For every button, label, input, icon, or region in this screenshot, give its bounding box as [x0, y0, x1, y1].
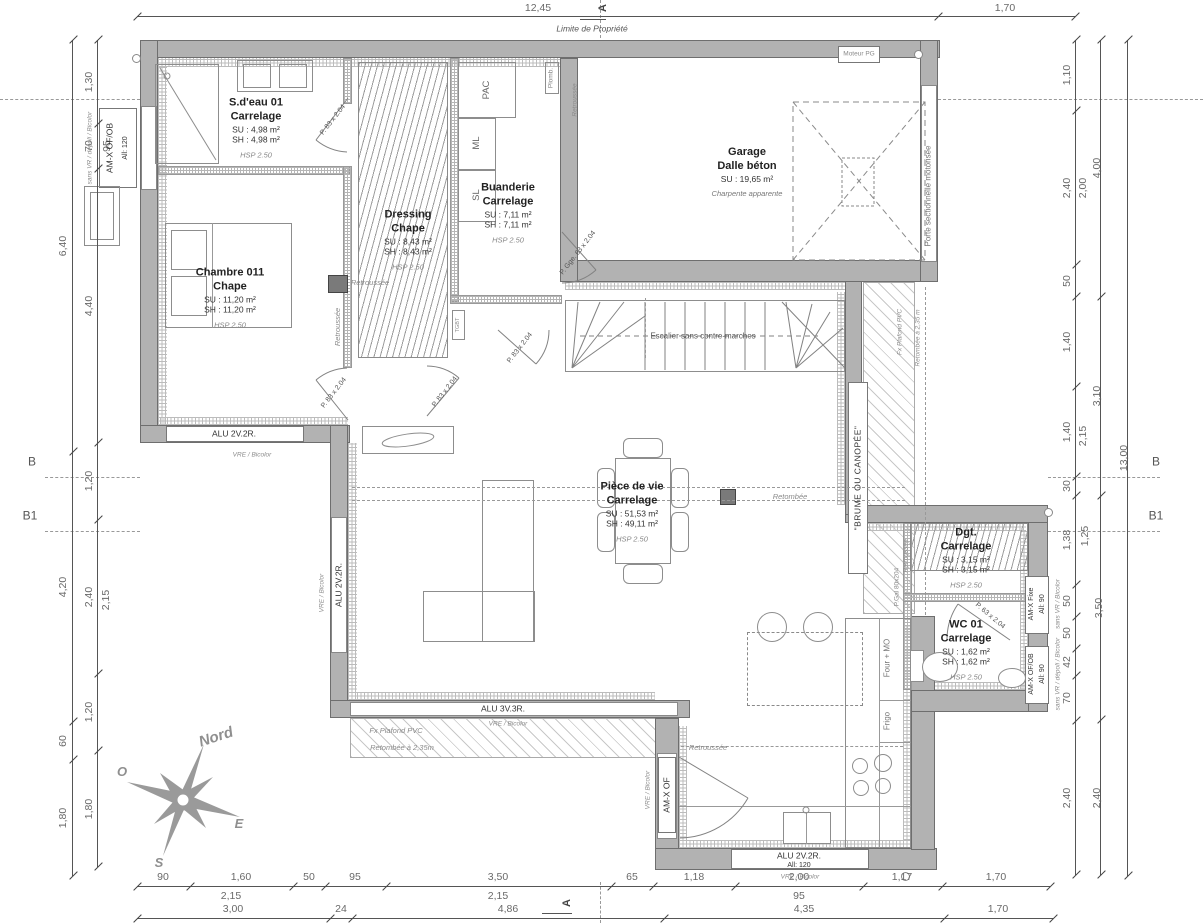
dim-tick: [289, 882, 297, 890]
dim-label: 4,40: [84, 296, 96, 316]
dim-label: 1,70: [995, 3, 1015, 15]
dim-chain-left-outer: [72, 40, 73, 876]
window-note: VRE / Bicolor: [233, 451, 272, 458]
dim-tick: [1097, 35, 1105, 43]
dim-label: 2,40: [1062, 178, 1074, 198]
dim-label: 2,15: [488, 891, 508, 903]
kitchen-sink: [783, 812, 831, 844]
bar-stool: [757, 612, 787, 642]
dim-tick: [1072, 260, 1080, 268]
dim-tick: [69, 755, 77, 763]
dim-label: 12,45: [525, 3, 551, 15]
post-hall: [328, 275, 348, 293]
dim-label: 2,40: [84, 587, 96, 607]
dim-tick: [348, 914, 356, 922]
dim-label: 2,00: [1078, 178, 1090, 198]
door-size-label: P. 83 x 2.04: [431, 375, 459, 408]
dim-label: 4,35: [794, 904, 814, 916]
sectional-door-label: Porte sectionnelle motorisée: [925, 146, 934, 247]
annotation: Retroussée: [351, 279, 389, 287]
sink-basin: [279, 64, 307, 88]
dim-chain-right-inner: [1075, 40, 1076, 875]
annotation: Retroussée: [902, 539, 909, 572]
room-hsp: HSP 2.50: [492, 235, 524, 244]
pac-label: PAC: [482, 81, 492, 100]
property-line-label: Limite de Propriété: [556, 24, 627, 33]
room-name: Garage: [728, 146, 766, 160]
window-allege: All: 90: [1039, 594, 1047, 613]
dim-label: 95: [349, 872, 361, 884]
dim-tick: [938, 882, 946, 890]
terrace-label: "BRUME OU CANOPÉE": [853, 426, 862, 531]
wall-garage-south: [560, 260, 938, 282]
stair-label: Escalier sans contre-marches: [650, 333, 755, 342]
window-label: AM-X Fixe: [1028, 588, 1036, 621]
window-label: ALU 2V.2R.: [212, 429, 256, 438]
counter-line: [879, 742, 911, 743]
dim-label: 90: [157, 872, 169, 884]
garage-ceiling-trap: [793, 102, 925, 260]
room-sh: SH : 4,98 m²: [232, 135, 280, 146]
dim-label: 3,10: [1092, 386, 1104, 406]
dim-tick: [1072, 382, 1080, 390]
dim-tick: [1072, 580, 1080, 588]
room-su: SU : 1,62 m²: [942, 646, 990, 657]
room-sh: SH : 1,62 m²: [942, 657, 990, 668]
room-label-garage: Garage Dalle béton SU : 19,65 m² Charpen…: [712, 146, 783, 199]
dim-label: 24: [335, 904, 347, 916]
section-marker-b1-right: B1: [1149, 509, 1164, 522]
room-name: Buanderie: [481, 181, 535, 195]
room-sh: SH : 49,11 m²: [606, 519, 658, 530]
plumbing-label: Plomb.: [547, 68, 554, 88]
room-su: SU : 4,98 m²: [232, 124, 280, 135]
dim-label: 1,20: [84, 702, 96, 722]
annotation: Retroussée: [571, 83, 578, 116]
section-marker-line: [580, 19, 606, 20]
annotation: Retombée à 2,35m: [370, 744, 434, 752]
chair: [671, 468, 689, 508]
dim-label: 4,00: [1092, 158, 1104, 178]
room-name: S.d'eau 01: [229, 96, 283, 110]
wall-top: [140, 40, 940, 58]
dim-tick: [1097, 870, 1105, 878]
meter-box-inner: [90, 192, 114, 240]
dim-tick: [1072, 491, 1080, 499]
room-sh: SH : 8,43 m²: [384, 247, 432, 258]
sofa-short: [423, 591, 535, 642]
dim-tick: [1072, 671, 1080, 679]
dim-chain-top: [137, 16, 1075, 17]
dim-tick: [326, 914, 334, 922]
window-note: VRE / Bicolor: [489, 720, 528, 727]
room-label-dgt: Dgt. Carrelage SU : 3,15 m² SH : 3,15 m²…: [941, 526, 992, 589]
dim-label: 60: [58, 735, 70, 747]
room-su: SU : 19,65 m²: [721, 173, 773, 184]
window-label: ALU 2V.2R.: [334, 563, 343, 607]
compass-rose-icon: [127, 744, 240, 856]
insulation-kitchen-west: [679, 726, 687, 848]
window-allege: All: 120: [122, 136, 130, 159]
cooktop-burner: [853, 780, 869, 796]
dim-tick: [321, 882, 329, 890]
room-floor: Carrelage: [607, 494, 658, 508]
dim-tick: [660, 914, 668, 922]
section-marker-line: [542, 913, 572, 914]
room-su: SU : 11,20 m²: [204, 294, 256, 305]
partition-dgt-wc: [903, 593, 1028, 602]
partition-bedroom-dressing: [343, 166, 352, 368]
dim-label: 2,40: [1092, 788, 1104, 808]
room-floor: Carrelage: [231, 110, 282, 124]
room-label-dressing: Dressing Chape SU : 8,43 m² SH : 8,43 m²…: [384, 208, 432, 271]
dim-tick: [649, 882, 657, 890]
survey-point: [914, 50, 923, 59]
dim-tick: [1049, 914, 1057, 922]
chair: [623, 564, 663, 584]
survey-point: [1044, 508, 1053, 517]
shower-tray: [155, 64, 219, 164]
dim-tick: [1097, 292, 1105, 300]
dim-label: 1,70: [988, 904, 1008, 916]
door-size-label: P. 83 x 2.04: [506, 331, 534, 364]
dim-tick: [133, 12, 141, 20]
section-marker-b1-left: B1: [23, 509, 38, 522]
counter-line: [879, 700, 911, 701]
sideboard: [362, 426, 454, 454]
dim-tick: [1072, 612, 1080, 620]
window-note: VRE / Bicolor: [781, 873, 820, 880]
insulation-living-west: [348, 443, 357, 700]
dim-chain-bottom-2: [137, 918, 1053, 919]
dim-tick: [382, 882, 390, 890]
dim-tick: [1124, 871, 1132, 879]
dim-tick: [94, 669, 102, 677]
chair: [623, 438, 663, 458]
cooktop-burner: [874, 754, 892, 772]
dim-label: 2,40: [1062, 788, 1074, 808]
floor-plan: 12,45 1,70 Limite de Propriété 90 1,60 5…: [0, 0, 1203, 923]
dim-label: 50: [1062, 275, 1074, 287]
room-floor: Dalle béton: [717, 160, 776, 174]
dim-tick: [94, 35, 102, 43]
room-note: Charpente apparente: [712, 189, 783, 198]
dim-label: 2,15: [1078, 426, 1090, 446]
partition-buanderie-south: [450, 295, 562, 304]
room-hsp: HSP 2.50: [950, 672, 982, 681]
dim-tick: [69, 447, 77, 455]
room-su: SU : 7,11 m²: [484, 209, 531, 220]
section-b-axis-right: [1048, 477, 1160, 478]
annotation: Retombée à 2,35 m: [914, 309, 921, 366]
dim-label: 1,40: [1062, 422, 1074, 442]
window-allege: All: 120: [787, 862, 810, 870]
annotation: Fx Plafond PVC: [896, 309, 903, 355]
room-su: SU : 3,15 m²: [942, 554, 990, 565]
dim-label: 2,15: [221, 891, 241, 903]
room-su: SU : 51,53 m²: [606, 508, 658, 519]
dim-label: 70: [1062, 692, 1074, 704]
room-hsp: HSP 2.50: [214, 320, 246, 329]
annotation: Retombée: [773, 493, 808, 501]
oven-label: Four + MO: [884, 639, 893, 677]
partition-bath-dressing: [343, 58, 352, 104]
room-sh: SH : 7,11 m²: [484, 220, 531, 231]
section-marker-b-left: B: [28, 455, 36, 468]
section-marker-a-bottom: A: [561, 899, 573, 907]
dim-tick: [1097, 491, 1105, 499]
room-label-buanderie: Buanderie Carrelage SU : 7,11 m² SH : 7,…: [481, 181, 535, 244]
dim-tick: [1072, 716, 1080, 724]
dim-tick: [859, 882, 867, 890]
room-label-wc: WC 01 Carrelage SU : 1,62 m² SH : 1,62 m…: [941, 618, 992, 681]
cooktop-burner: [875, 778, 891, 794]
sink-basin: [243, 64, 271, 88]
sink-divider: [806, 812, 807, 844]
kitchen-counter: [845, 618, 911, 848]
counter-line: [879, 618, 880, 848]
door-size-label: P. 83 x 2.04: [319, 103, 347, 136]
room-label-sdeau: S.d'eau 01 Carrelage SU : 4,98 m² SH : 4…: [229, 96, 283, 159]
dim-tick: [69, 717, 77, 725]
garage-motor-label: Moteur PG: [843, 50, 874, 57]
window-note: sans VR / dépoli / Bicolor: [1054, 638, 1061, 711]
annotation: Retroussée: [689, 744, 727, 752]
dim-tick: [94, 746, 102, 754]
dim-tick: [1071, 12, 1079, 20]
room-floor: Carrelage: [483, 195, 534, 209]
cooktop-burner: [852, 758, 868, 774]
room-name: Chambre 011: [196, 266, 264, 280]
dim-tick: [133, 914, 141, 922]
dim-tick: [1072, 35, 1080, 43]
counter-edge: [679, 806, 911, 807]
compass-north-label: Nord: [197, 724, 236, 751]
dim-label: 4,86: [498, 904, 518, 916]
room-label-piecedevie: Pièce de vie Carrelage SU : 51,53 m² SH …: [601, 480, 664, 543]
property-line-west: [0, 99, 140, 100]
dim-label: 3,50: [1094, 598, 1106, 618]
dim-label: 2,15: [101, 590, 113, 610]
fridge-label: Frigo: [884, 712, 893, 730]
room-floor: Chape: [391, 222, 425, 236]
dim-tick: [1072, 106, 1080, 114]
chair: [671, 512, 689, 552]
dim-label: 50: [1062, 627, 1074, 639]
room-su: SU : 8,43 m²: [384, 236, 432, 247]
bar-stool: [803, 612, 833, 642]
dim-label: 1,10: [1062, 65, 1074, 85]
room-sh: SH : 3,15 m²: [942, 565, 990, 576]
dim-tick: [69, 871, 77, 879]
dim-label: 1,20: [84, 471, 96, 491]
wall-dgt-north: [845, 505, 1048, 523]
dim-tick: [1072, 644, 1080, 652]
dim-tick: [69, 35, 77, 43]
dim-label: 4,20: [58, 577, 70, 597]
dim-tick: [940, 914, 948, 922]
washer-label: ML: [472, 136, 482, 149]
dim-tick: [186, 882, 194, 890]
annotation: Fx Plafond PVC: [369, 727, 422, 735]
room-name: Dgt.: [955, 526, 976, 540]
window-label: ALU 2V.2R.: [777, 851, 821, 860]
dim-tick: [133, 882, 141, 890]
compass-south-label: S: [155, 856, 164, 870]
dim-label: 1,38: [1062, 530, 1074, 550]
door-size-label: P. 83 x 2.04: [320, 376, 348, 409]
door-note: VRE / Bicolor: [644, 771, 651, 810]
room-sh: SH : 11,20 m²: [204, 305, 256, 316]
dim-chain-left-inner: [97, 40, 98, 867]
room-name: Pièce de vie: [601, 480, 664, 494]
dim-tick: [94, 862, 102, 870]
room-floor: Chape: [213, 280, 247, 294]
compass-west-label: O: [117, 765, 127, 779]
window-allege: All: 90: [1039, 664, 1047, 683]
dim-label: 3,00: [223, 904, 243, 916]
property-line-east: [938, 99, 1203, 100]
door-label: AM-X OF: [662, 777, 671, 812]
room-hsp: HSP 2.50: [392, 262, 424, 271]
insulation-living-south: [357, 692, 655, 700]
dim-label: 50: [303, 872, 315, 884]
section-b1-axis-left: [45, 531, 140, 532]
room-hsp: HSP 2.50: [616, 534, 648, 543]
retombee-line-east: [925, 287, 926, 615]
dim-tick: [1072, 870, 1080, 878]
dim-label: 50: [1062, 595, 1074, 607]
dim-tick: [731, 882, 739, 890]
dim-tick: [607, 882, 615, 890]
window-note: sans VR / Bicolor: [1054, 579, 1061, 629]
dim-label: 1,80: [84, 799, 96, 819]
dim-label: 1,80: [58, 808, 70, 828]
dim-label: 42: [1062, 656, 1074, 668]
dim-tick: [94, 438, 102, 446]
retroussee-line-hall: [645, 298, 646, 358]
room-floor: Carrelage: [941, 632, 992, 646]
insulation-bed-front: [160, 417, 348, 425]
annotation: Retroussée: [334, 308, 342, 346]
dim-label: 3,50: [488, 872, 508, 884]
room-floor: Carrelage: [941, 540, 992, 554]
dim-tick: [1097, 715, 1105, 723]
dim-tick: [1072, 292, 1080, 300]
dim-label: 30: [1062, 480, 1074, 492]
dim-chain-bottom-1: [137, 886, 1050, 887]
window-note: sans VR / dépoli / Bicolor: [86, 112, 93, 185]
dim-label: 1,60: [231, 872, 251, 884]
room-hsp: HSP 2.50: [950, 580, 982, 589]
post-living: [720, 489, 736, 505]
dim-label: 13,00: [1119, 445, 1131, 471]
window-note: VRE / Bicolor: [318, 574, 325, 613]
window-label: AM-X OF/OB: [105, 123, 114, 173]
compass-east-label: E: [235, 817, 244, 831]
partition-bath-bedroom: [158, 166, 350, 175]
room-name: WC 01: [949, 618, 983, 632]
dim-label: 1,18: [684, 872, 704, 884]
section-a-axis-bottom: [600, 882, 601, 923]
dim-tick: [1046, 882, 1054, 890]
pillow: [171, 230, 207, 270]
section-marker-b-right: B: [1152, 455, 1160, 468]
dim-label: 1,30: [84, 72, 96, 92]
room-hsp: HSP 2.50: [240, 150, 272, 159]
dim-label: 65: [626, 872, 638, 884]
hand-basin: [998, 668, 1026, 688]
tgbt-label: TGBT: [455, 318, 461, 333]
insulation-stair-north: [565, 282, 845, 290]
window-label: ALU 3V.3R.: [481, 704, 525, 713]
survey-point: [132, 54, 141, 63]
dim-tick: [94, 515, 102, 523]
window-label: AM-X OF/OB: [1028, 653, 1036, 694]
dim-label: 1,40: [1062, 332, 1074, 352]
dim-tick: [934, 12, 942, 20]
room-label-chambre: Chambre 011 Chape SU : 11,20 m² SH : 11,…: [196, 266, 264, 329]
dim-label: 95: [793, 891, 805, 903]
dim-tick: [1124, 35, 1132, 43]
dim-label: 1,70: [986, 872, 1006, 884]
dim-label: 6,40: [58, 236, 70, 256]
pocket-door-label: P.Gal 80x204: [893, 568, 900, 607]
section-marker-a-top: A: [597, 4, 609, 12]
dim-label: 1,25: [1080, 526, 1092, 546]
dim-label: 1,17: [892, 872, 912, 884]
room-name: Dressing: [384, 208, 431, 222]
